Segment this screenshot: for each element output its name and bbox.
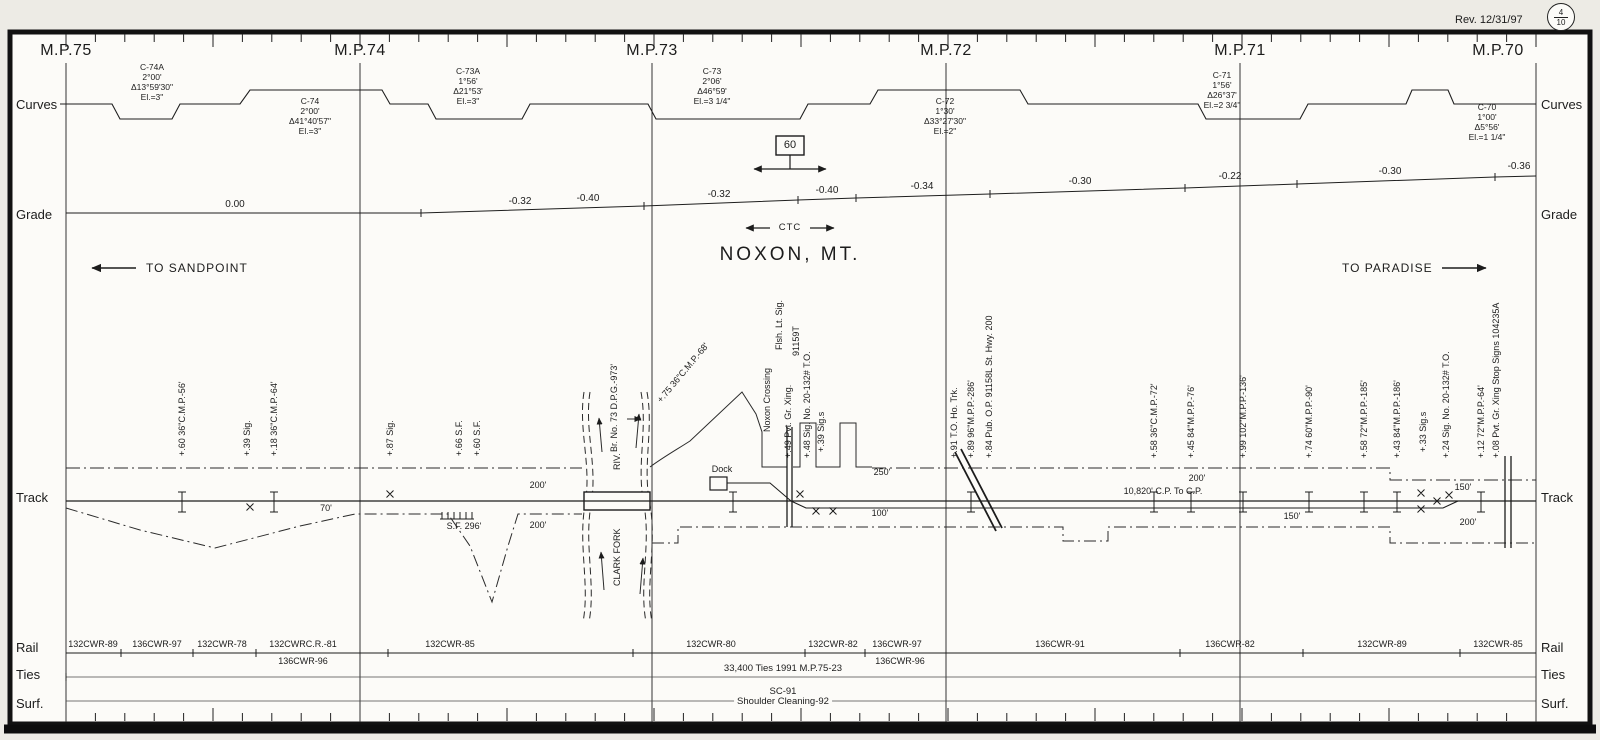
curve-deg: 2°06' — [694, 76, 731, 86]
track-feature-label: Noxon Crossing — [762, 368, 772, 432]
grade-profile-line — [66, 176, 1536, 213]
curve-data-block: C-732°06'Δ46°59'El.=3 1/4" — [694, 66, 731, 106]
track-feature-label: +.45 84"M.P.P.-76' — [1186, 385, 1196, 458]
rail-segment-label: 132CWR-85 — [425, 639, 475, 649]
gutter-label-right: Track — [1541, 490, 1573, 505]
gutter-label-right: Rail — [1541, 640, 1563, 655]
grade-value-label: -0.32 — [708, 189, 731, 200]
track-feature-label: +.18 36"C.M.P.-64' — [269, 381, 279, 456]
track-feature-label: +.33 Sig.s — [1418, 412, 1428, 452]
track-feature-label: CLARK FORK — [612, 528, 622, 586]
rail-segment-label: 136CWR-97 — [872, 639, 922, 649]
milepost-label: M.P.74 — [334, 42, 386, 60]
surf-note-line2: Shoulder Cleaning-92 — [734, 696, 832, 707]
gutter-label-left: Surf. — [16, 696, 43, 711]
gutter-label-left: Track — [16, 490, 48, 505]
track-chart-linework — [0, 0, 1600, 740]
curve-data-block: C-74A2°00'Δ13°59'30"El.=3" — [131, 62, 173, 102]
curve-data-block: C-721°30'Δ33°27'30"El.=2" — [924, 96, 966, 136]
highway-200-crossing — [955, 449, 1002, 531]
ties-note: 33,400 Ties 1991 M.P.75-23 — [724, 663, 842, 674]
curve-el: El.=3" — [131, 92, 173, 102]
grade-value-label: -0.40 — [816, 185, 839, 196]
gutter-label-left: Ties — [16, 667, 40, 682]
revision-date: Rev. 12/31/97 — [1455, 14, 1523, 26]
curve-el: El.=2 3/4" — [1204, 100, 1241, 110]
rail-segment-label: 132CWR-78 — [197, 639, 247, 649]
track-feature-label: +.60 S.F. — [472, 420, 482, 456]
milepost-label: M.P.73 — [626, 42, 678, 60]
gutter-label-left: Grade — [16, 207, 52, 222]
curve-delta: Δ33°27'30" — [924, 116, 966, 126]
curve-deg: 1°00' — [1469, 112, 1506, 122]
curve-data-block: C-711°56'Δ26°37'El.=2 3/4" — [1204, 70, 1241, 110]
rail-segment-label: 132CWR-82 — [808, 639, 858, 649]
distance-label: 200' — [1189, 473, 1206, 483]
milepost-lines — [66, 63, 1536, 722]
right-of-way-lines — [66, 392, 1536, 602]
rail-segment-label: 132CWR-89 — [68, 639, 118, 649]
curve-trace — [60, 90, 1536, 119]
curve-name: C-74A — [131, 62, 173, 72]
rail-segment-label-below: 136CWR-96 — [875, 656, 925, 666]
curve-el: El.=3" — [289, 126, 331, 136]
distance-label: 200' — [530, 520, 547, 530]
dock-label: Dock — [712, 464, 733, 474]
sheet-denominator: 10 — [1554, 17, 1569, 27]
track-feature-label: +.39 Sig. — [242, 420, 252, 456]
curve-el: El.=3" — [453, 96, 483, 106]
rail-segment-label-below: 136CWR-96 — [278, 656, 328, 666]
track-feature-label: +.48 Sig. No. 20-132# T.O. — [802, 351, 812, 458]
curve-data-block: C-701°00'Δ5°56'El.=1 1/4" — [1469, 102, 1506, 142]
track-feature-label: +.08 Pvt. Gr. Xing Stop Signs 104235A — [1491, 303, 1501, 458]
rail-segment-label: 132CWR-80 — [686, 639, 736, 649]
track-feature-label: +.87 Sig. — [385, 420, 395, 456]
sheet-numerator: 4 — [1559, 8, 1563, 17]
curve-delta: Δ13°59'30" — [131, 82, 173, 92]
distance-label: 150' — [1455, 482, 1472, 492]
curve-data-block: C-73A1°56'Δ21°53'El.=3" — [453, 66, 483, 106]
direction-left-label: TO SANDPOINT — [146, 261, 248, 275]
track-chart-page: Rev. 12/31/97 4 10 NOXON, MT. CTC 60 TO … — [0, 0, 1600, 740]
track-feature-label: +.89 96"M.P.P.-286' — [966, 380, 976, 458]
curve-data-block: C-742°00'Δ41°40'57"El.=3" — [289, 96, 331, 136]
track-feature-label: +.91 T.O. Ho. Trk. — [949, 387, 959, 458]
distance-label: 250' — [874, 467, 891, 477]
grade-value-label: 0.00 — [225, 199, 244, 210]
milepost-label: M.P.72 — [920, 42, 972, 60]
curve-el: El.=1 1/4" — [1469, 132, 1506, 142]
curve-delta: Δ21°53' — [453, 86, 483, 96]
gutter-label-right: Ties — [1541, 667, 1565, 682]
curve-name: C-73 — [694, 66, 731, 76]
gutter-label-left: Curves — [16, 97, 57, 112]
gutter-label-right: Curves — [1541, 97, 1582, 112]
distance-label: 100' — [872, 508, 889, 518]
station-title: NOXON, MT. — [720, 244, 861, 266]
track-feature-label: +.49 Pvt. Gr. Xing. — [783, 385, 793, 458]
curve-name: C-74 — [289, 96, 331, 106]
rail-segment-label: 136CWR-97 — [132, 639, 182, 649]
gutter-label-right: Surf. — [1541, 696, 1568, 711]
track-feature-label: 91159T — [791, 326, 801, 356]
grade-value-label: -0.30 — [1379, 166, 1402, 177]
track-feature-label: Br. No. 73 D.P.G.-973' — [609, 364, 619, 452]
grade-value-label: -0.40 — [577, 193, 600, 204]
track-feature-label: +.24 Sig. No. 20-132# T.O. — [1441, 351, 1451, 458]
track-feature-label: +.74 60"M.P.P.-90' — [1304, 385, 1314, 458]
milepost-label: M.P.75 — [40, 42, 92, 60]
grade-value-label: -0.22 — [1219, 171, 1242, 182]
distance-label: 70' — [320, 503, 332, 513]
distance-label: 200' — [530, 480, 547, 490]
grade-value-label: -0.32 — [509, 196, 532, 207]
track-feature-label: RIV. — [612, 453, 622, 470]
curve-deg: 1°30' — [924, 106, 966, 116]
gutter-label-right: Grade — [1541, 207, 1577, 222]
ctc-label: CTC — [779, 222, 802, 233]
distance-label: 150' — [1284, 511, 1301, 521]
track-feature-label: +.12 72"M.P.P.-64' — [1476, 385, 1486, 458]
sheet-number-badge: 4 10 — [1547, 3, 1575, 31]
grade-value-label: -0.34 — [911, 181, 934, 192]
distance-label: 200' — [1460, 517, 1477, 527]
track-feature-label: +.99 102"M.P.P.-136' — [1238, 375, 1248, 458]
curve-delta: Δ46°59' — [694, 86, 731, 96]
rail-segment-label: 132CWRC.R.-81 — [269, 639, 337, 649]
direction-right-label: TO PARADISE — [1342, 261, 1433, 275]
siding-track-line — [791, 501, 1458, 508]
pvt-crossing-right — [1505, 456, 1511, 548]
distance-label: 10,820' C.P. To C.P. — [1124, 486, 1203, 496]
track-feature-label: +.60 36"C.M.P.-56' — [177, 381, 187, 456]
stock-fence-ticks — [440, 512, 474, 519]
curve-deg: 2°00' — [131, 72, 173, 82]
curve-el: El.=3 1/4" — [694, 96, 731, 106]
rail-segment-label: 132CWR-89 — [1357, 639, 1407, 649]
curve-deg: 2°00' — [289, 106, 331, 116]
rail-segment-label: 136CWR-91 — [1035, 639, 1085, 649]
curve-deg: 1°56' — [1204, 80, 1241, 90]
curve-el: El.=2" — [924, 126, 966, 136]
dock-symbol — [710, 477, 727, 490]
gutter-label-left: Rail — [16, 640, 38, 655]
curve-delta: Δ5°56' — [1469, 122, 1506, 132]
milepost-label: M.P.71 — [1214, 42, 1266, 60]
grade-value-label: -0.36 — [1508, 161, 1531, 172]
track-feature-label: +.39 Sig.s — [816, 412, 826, 452]
curve-deg: 1°56' — [453, 76, 483, 86]
curve-delta: Δ26°37' — [1204, 90, 1241, 100]
track-feature-label: Flsh. Lt. Sig. — [774, 300, 784, 350]
curve-name: C-73A — [453, 66, 483, 76]
curve-name: C-71 — [1204, 70, 1241, 80]
signal-x-marks — [247, 490, 1453, 515]
track-feature-label: +.84 Pub. O.P. 91158L St. Hwy. 200 — [984, 315, 994, 458]
speed-limit-value: 60 — [784, 139, 796, 151]
curve-name: C-70 — [1469, 102, 1506, 112]
track-feature-label: +.58 36"C.M.P.-72' — [1149, 383, 1159, 458]
rail-segment-label: 132CWR-85 — [1473, 639, 1523, 649]
milepost-label: M.P.70 — [1472, 42, 1524, 60]
rail-segment-label: 136CWR-82 — [1205, 639, 1255, 649]
curve-name: C-72 — [924, 96, 966, 106]
grade-value-label: -0.30 — [1069, 176, 1092, 187]
track-feature-label: +.58 72"M.P.P.-185' — [1359, 380, 1369, 458]
track-feature-label: +.43 84"M.P.P.-186' — [1392, 380, 1402, 458]
track-feature-label: +.66 S.F. — [454, 420, 464, 456]
distance-label: S.F. 296' — [447, 521, 482, 531]
curve-delta: Δ41°40'57" — [289, 116, 331, 126]
